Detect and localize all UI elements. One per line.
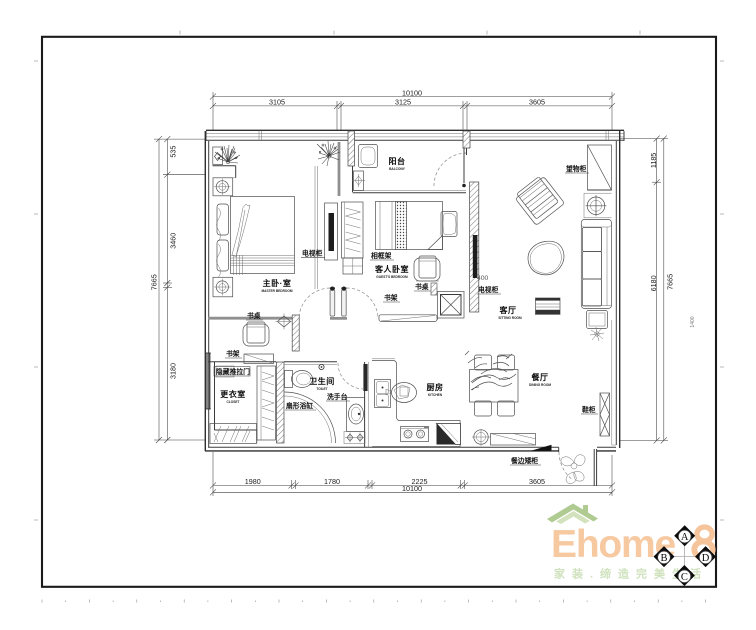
- svg-text:望物柜: 望物柜: [566, 164, 587, 173]
- svg-text:餐厅: 餐厅: [531, 372, 549, 382]
- svg-text:BALCONY: BALCONY: [389, 167, 406, 171]
- svg-text:书架: 书架: [384, 293, 398, 302]
- svg-text:DINING ROOM: DINING ROOM: [529, 383, 551, 387]
- svg-text:1185: 1185: [649, 153, 658, 168]
- svg-text:KITCHEN: KITCHEN: [428, 393, 443, 397]
- svg-text:书架: 书架: [226, 349, 240, 358]
- svg-text:阳台: 阳台: [389, 156, 406, 166]
- svg-text:6180: 6180: [649, 275, 658, 291]
- svg-text:MASTER BEDROOM: MASTER BEDROOM: [262, 289, 293, 293]
- svg-text:1980: 1980: [245, 477, 261, 486]
- svg-text:A: A: [681, 532, 689, 543]
- svg-text:餐边矮柜: 餐边矮柜: [510, 456, 538, 465]
- svg-text:书桌: 书桌: [415, 282, 429, 291]
- svg-text:客厅: 客厅: [499, 305, 517, 315]
- svg-text:B: B: [660, 553, 667, 564]
- svg-text:洗手台: 洗手台: [327, 392, 348, 401]
- svg-text:隐藏推拉门: 隐藏推拉门: [216, 367, 250, 376]
- svg-text:CLOSET: CLOSET: [227, 400, 240, 404]
- svg-text:7665: 7665: [666, 274, 675, 290]
- svg-text:400: 400: [477, 275, 489, 282]
- svg-text:3460: 3460: [168, 233, 177, 249]
- svg-text:3180: 3180: [168, 363, 177, 379]
- svg-text:D: D: [702, 553, 710, 564]
- svg-text:主卧·室: 主卧·室: [263, 278, 292, 288]
- svg-text:卫生间: 卫生间: [309, 376, 335, 386]
- svg-text:1400: 1400: [690, 316, 696, 327]
- svg-text:电视柜: 电视柜: [302, 249, 323, 258]
- svg-text:10100: 10100: [402, 88, 422, 97]
- svg-text:7665: 7665: [150, 274, 159, 290]
- svg-text:3605: 3605: [529, 98, 545, 107]
- svg-text:厨房: 厨房: [427, 382, 444, 392]
- svg-text:10100: 10100: [402, 484, 422, 493]
- svg-text:客人卧室: 客人卧室: [374, 264, 409, 274]
- svg-text:TOILET: TOILET: [316, 387, 327, 391]
- svg-text:扇形浴缸: 扇形浴缸: [286, 401, 313, 410]
- svg-text:3605: 3605: [529, 477, 545, 486]
- svg-text:535: 535: [168, 146, 177, 158]
- svg-text:1780: 1780: [324, 477, 340, 486]
- svg-text:SITTING ROOM: SITTING ROOM: [498, 316, 522, 320]
- svg-text:相框架: 相框架: [371, 251, 392, 260]
- svg-text:更衣室: 更衣室: [220, 389, 246, 399]
- svg-text:鞋柜: 鞋柜: [582, 405, 596, 414]
- svg-text:电视柜: 电视柜: [478, 285, 499, 294]
- svg-text:C: C: [681, 572, 688, 583]
- svg-text:3125: 3125: [395, 98, 411, 107]
- svg-text:GUEST'S BEDROOM: GUEST'S BEDROOM: [376, 275, 408, 279]
- svg-text:书桌: 书桌: [247, 311, 261, 320]
- svg-text:3105: 3105: [269, 98, 285, 107]
